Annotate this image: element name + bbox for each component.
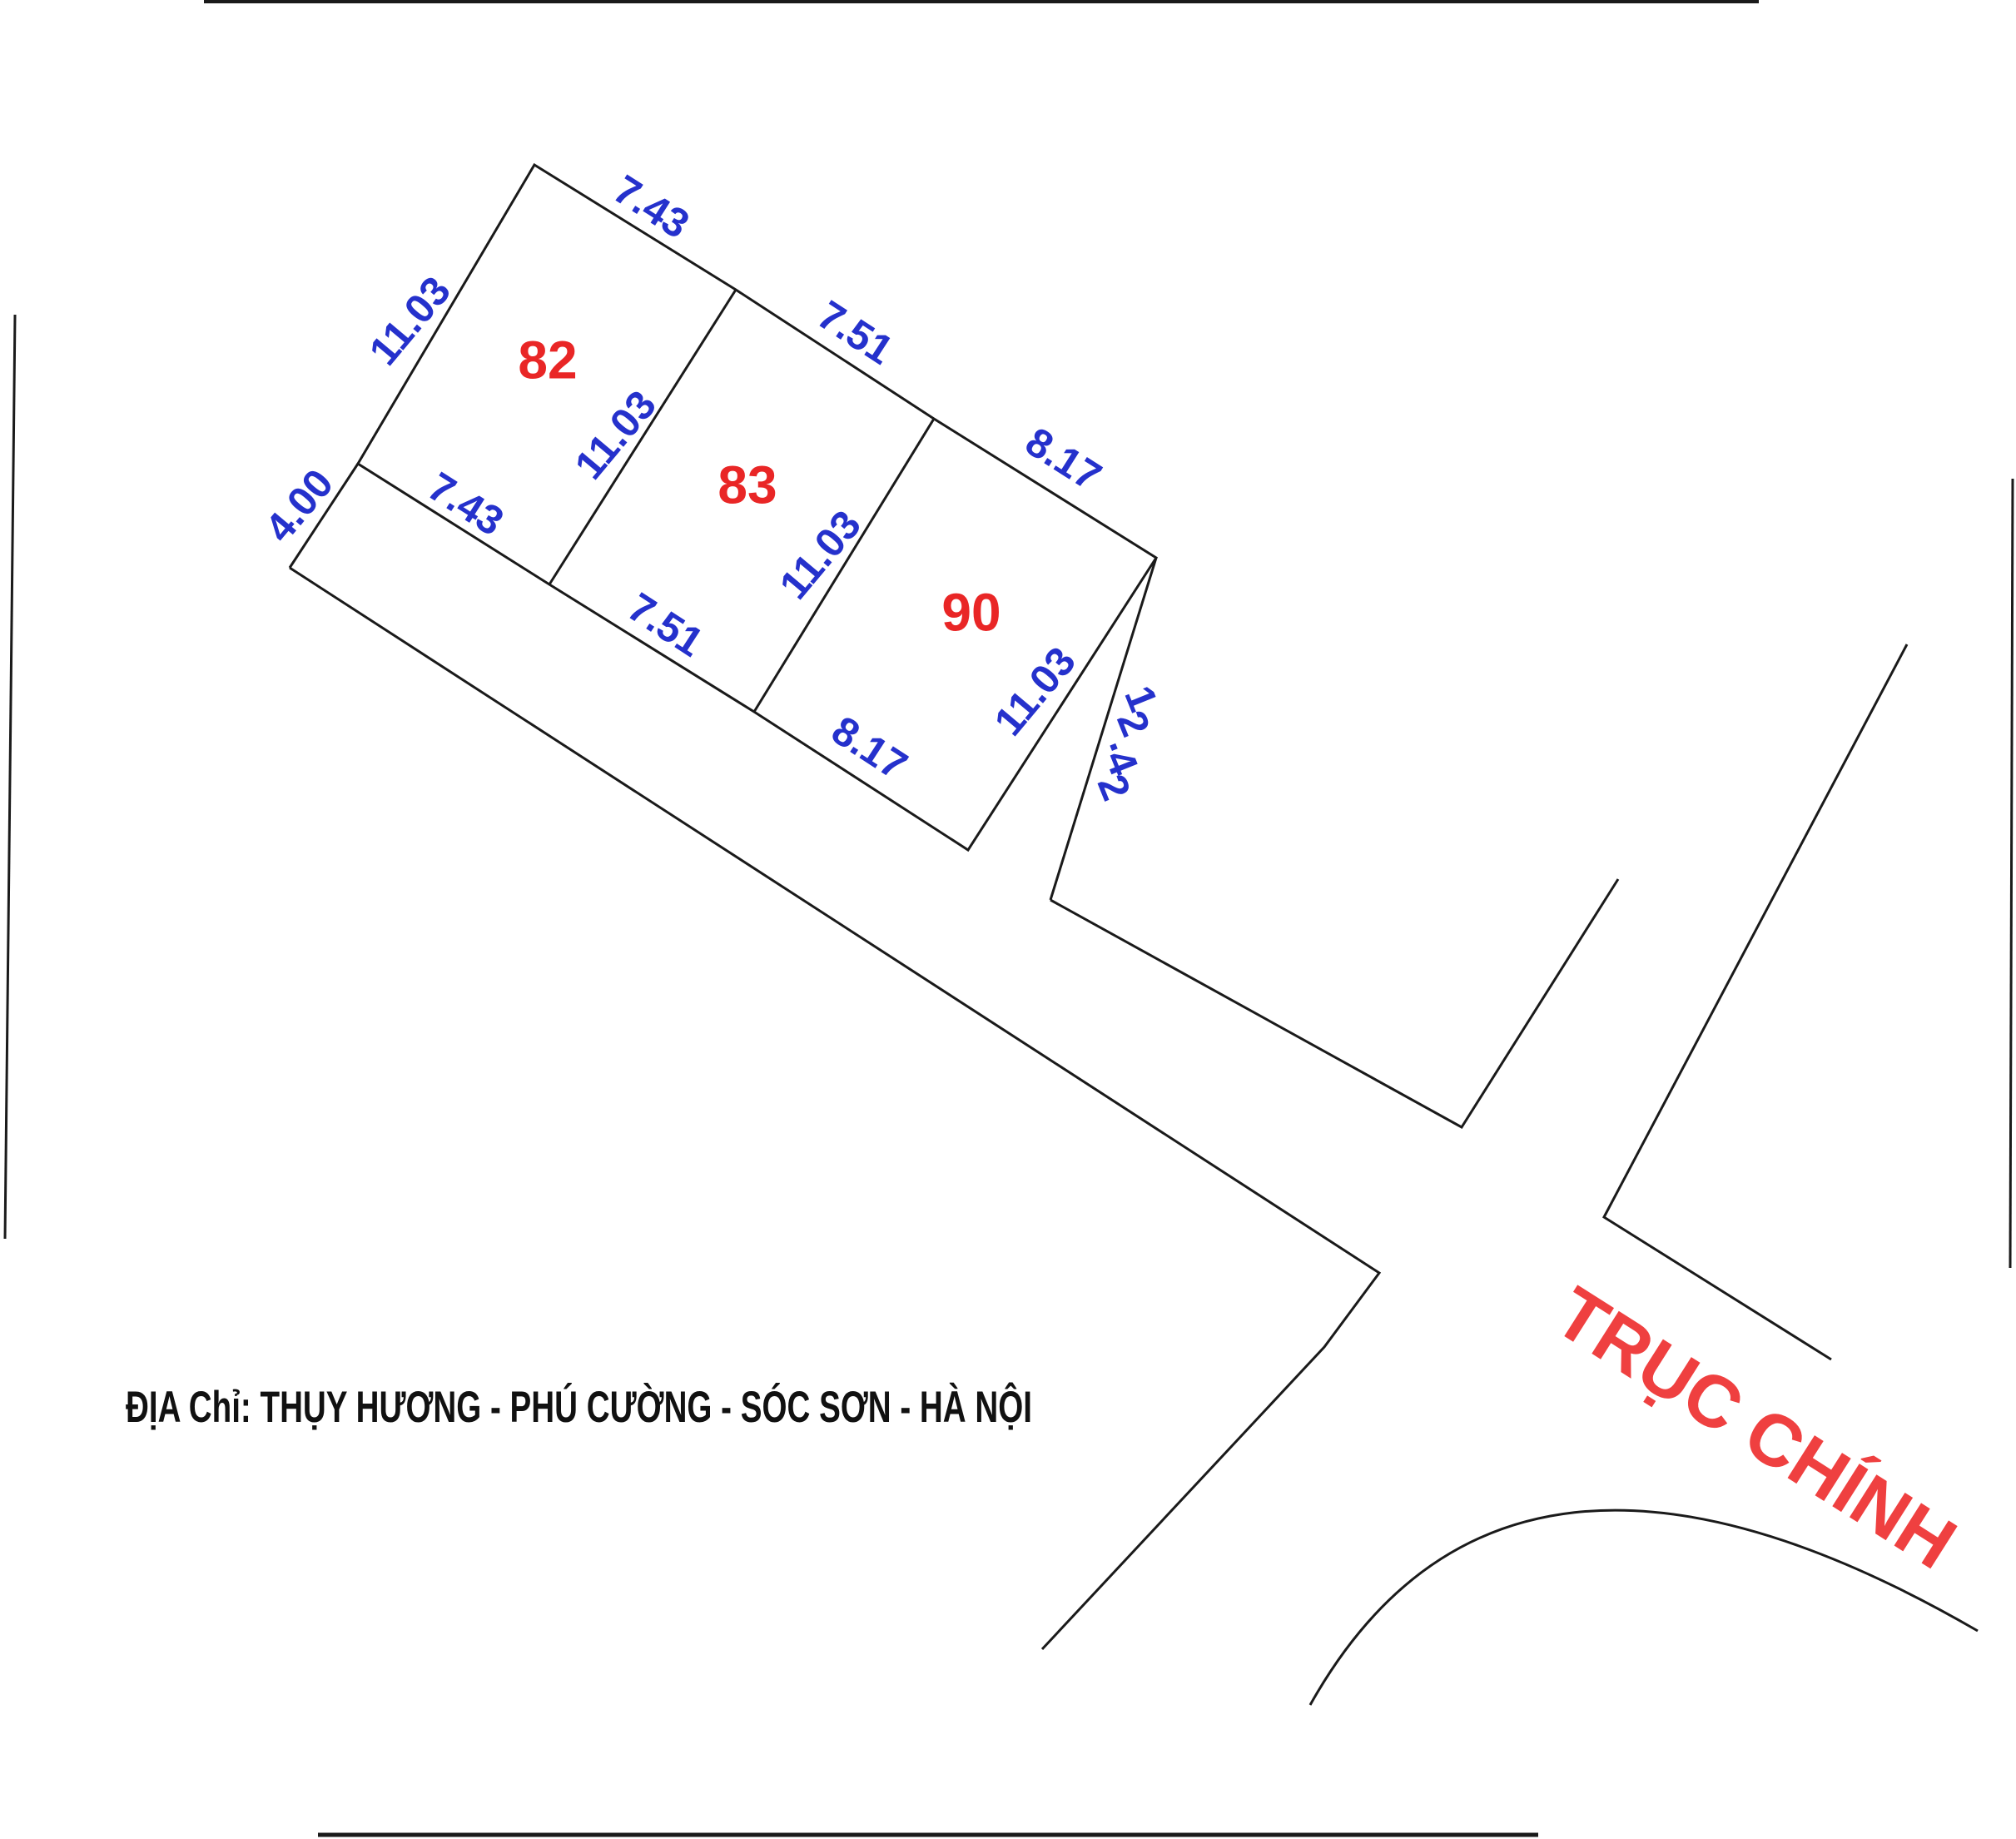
svg-text:7.43: 7.43 xyxy=(606,167,697,248)
svg-text:82: 82 xyxy=(518,330,577,390)
svg-text:11.03: 11.03 xyxy=(361,268,459,374)
svg-text:ĐỊA Chỉ: THỤY HƯƠNG - PHÚ CƯỜN: ĐỊA Chỉ: THỤY HƯƠNG - PHÚ CƯỜNG - SÓC SƠ… xyxy=(126,1381,1032,1432)
svg-text:12.42: 12.42 xyxy=(1083,669,1174,819)
svg-text:8.17: 8.17 xyxy=(824,708,915,788)
svg-text:8.17: 8.17 xyxy=(1018,420,1109,500)
svg-text:TRỤC CHÍNH: TRỤC CHÍNH xyxy=(1542,1270,1970,1584)
svg-text:83: 83 xyxy=(718,455,777,514)
svg-text:11.03: 11.03 xyxy=(772,502,870,608)
svg-text:90: 90 xyxy=(941,582,1001,642)
svg-text:7.51: 7.51 xyxy=(620,584,711,665)
svg-text:7.51: 7.51 xyxy=(810,292,901,373)
svg-text:11.03: 11.03 xyxy=(567,382,665,488)
